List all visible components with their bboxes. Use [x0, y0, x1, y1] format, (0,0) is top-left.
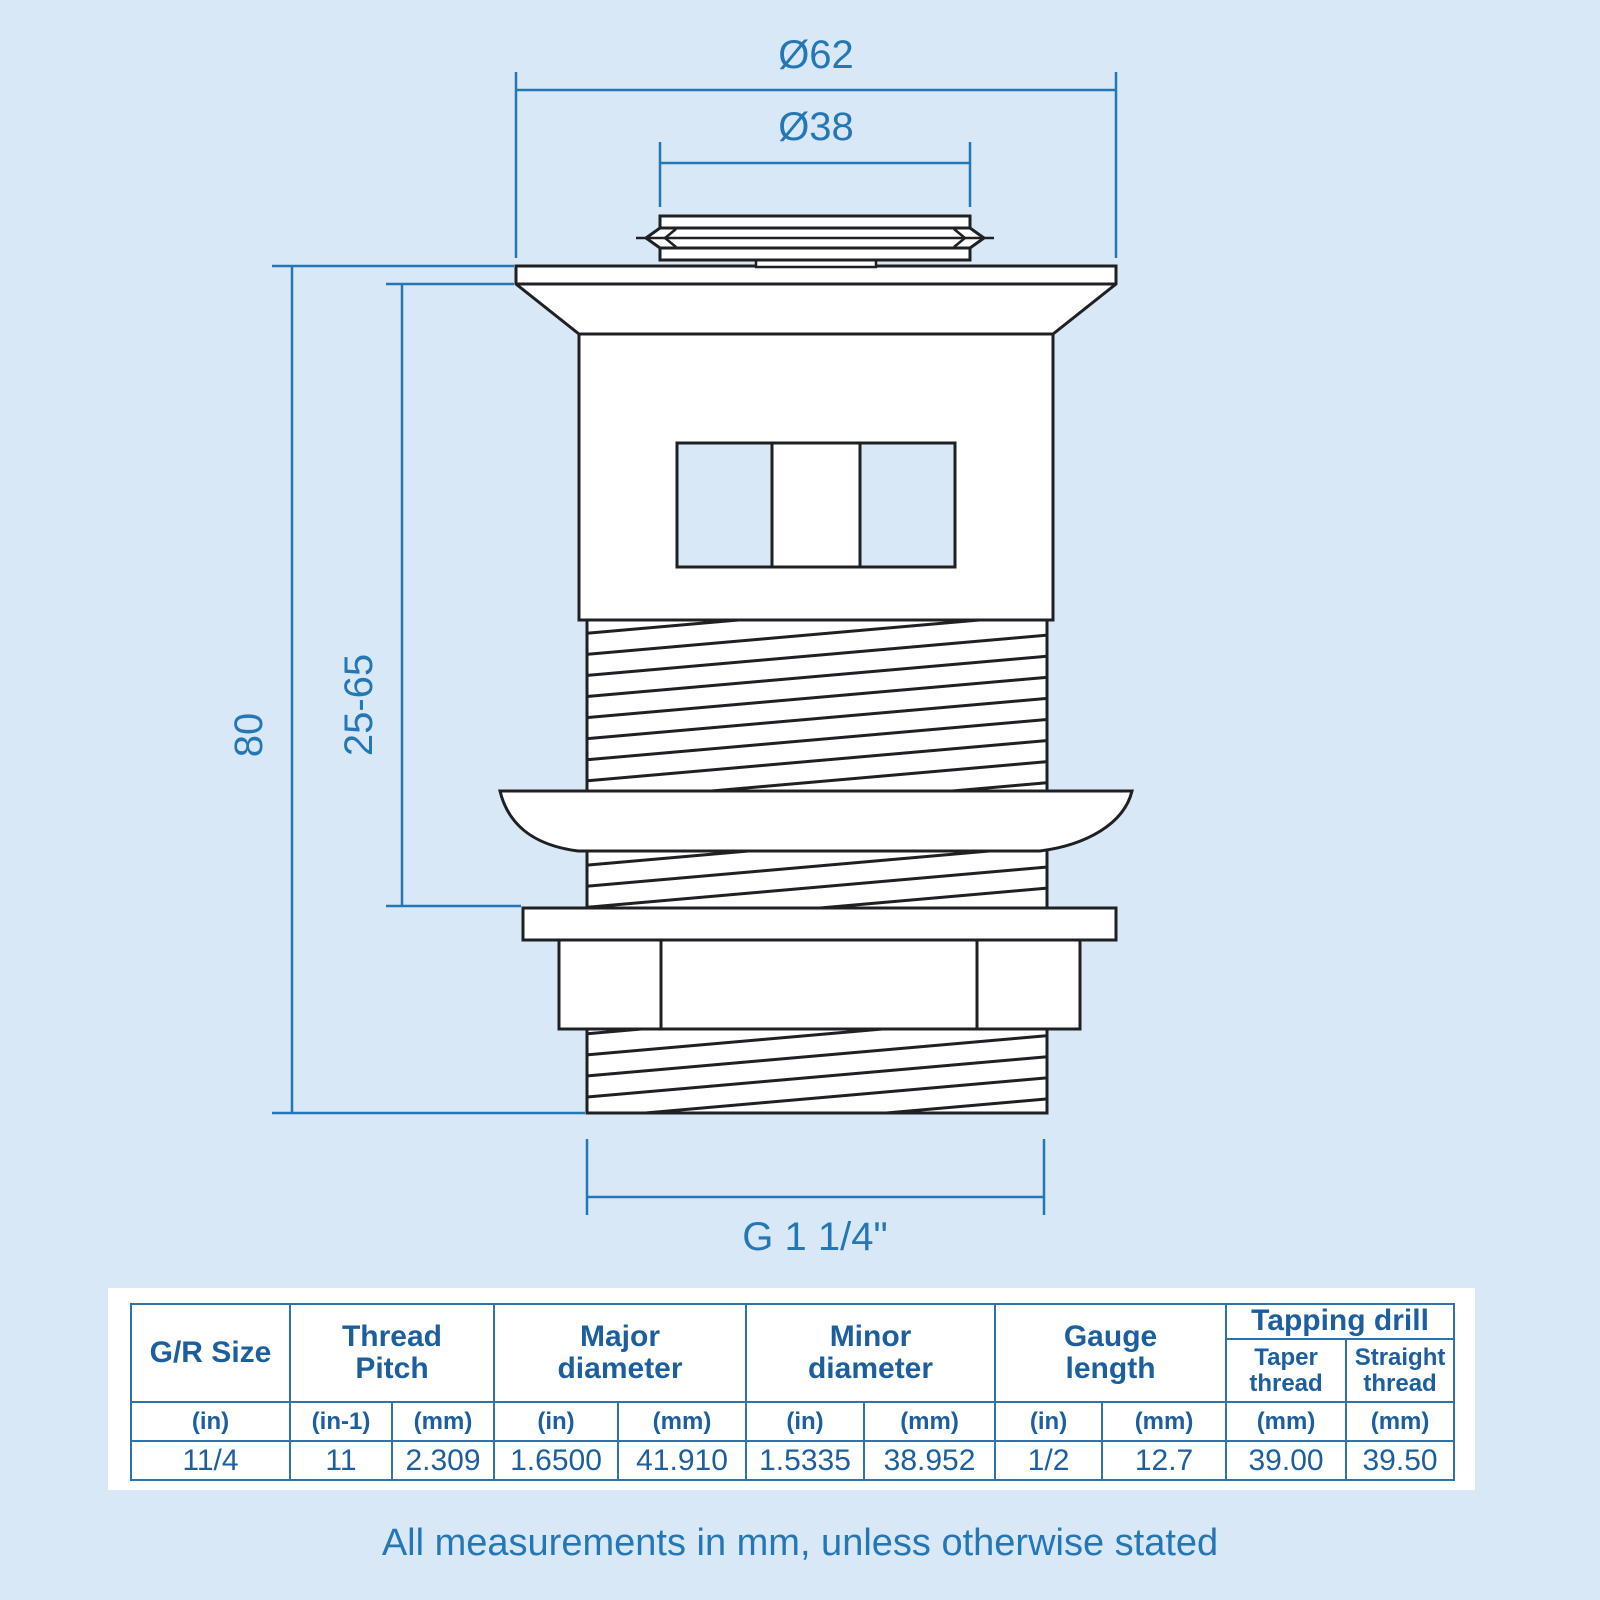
col-header-taper-thread: Taper thread [1226, 1339, 1346, 1402]
unit-cell: (in) [494, 1402, 618, 1441]
fixture-outline [500, 216, 1132, 1113]
col-header-gauge-length: Gauge length [995, 1304, 1226, 1402]
slot-window-right [860, 443, 955, 567]
top-flange [516, 266, 1116, 334]
measurement-note: All measurements in mm, unless otherwise… [0, 1522, 1600, 1565]
unit-cell: (in-1) [290, 1402, 392, 1441]
unit-cell: (in) [131, 1402, 290, 1441]
value-cell: 39.00 [1226, 1441, 1346, 1480]
dim-thread-size-label: G 1 1/4" [742, 1215, 887, 1259]
basin-waste-technical-drawing: Ø62 Ø38 80 25-65 G 1 1/4" [0, 0, 1600, 1290]
value-cell: 11 [290, 1441, 392, 1480]
value-cell: 1/2 [995, 1441, 1102, 1480]
value-cell: 1.6500 [494, 1441, 618, 1480]
value-cell: 1.5335 [746, 1441, 864, 1480]
unit-cell: (in) [995, 1402, 1102, 1441]
dim-total-height-label: 80 [227, 713, 271, 758]
slip-washer [500, 791, 1132, 851]
plug-lower-plate [660, 248, 970, 260]
unit-cell: (mm) [1102, 1402, 1226, 1441]
unit-cell: (mm) [618, 1402, 746, 1441]
value-cell: 11/4 [131, 1441, 290, 1480]
thread-band-upper [587, 620, 1047, 908]
dim-inner-diameter-label: Ø38 [778, 105, 854, 149]
col-header-tapping-drill: Tapping drill [1226, 1304, 1454, 1339]
value-cell: 12.7 [1102, 1441, 1226, 1480]
slot-window-left [677, 443, 772, 567]
value-cell: 2.309 [392, 1441, 494, 1480]
units-row: (in) (in-1) (mm) (in) (mm) (in) (mm) (in… [131, 1402, 1454, 1441]
col-header-minor-diameter: Minor diameter [746, 1304, 995, 1402]
col-header-gr-size: G/R Size [131, 1304, 290, 1402]
backnut-plate [523, 908, 1116, 940]
spec-sheet: Ø62 Ø38 80 25-65 G 1 1/4" G/R Size Threa… [0, 0, 1600, 1600]
slot-window-middle [772, 443, 860, 567]
dim-clamp-range-label: 25-65 [337, 654, 381, 756]
values-row: 11/4 11 2.309 1.6500 41.910 1.5335 38.95… [131, 1441, 1454, 1480]
dim-outer-diameter-label: Ø62 [778, 33, 854, 77]
unit-cell: (mm) [1346, 1402, 1454, 1441]
backnut-hex [559, 940, 1080, 1029]
col-header-thread-pitch: Thread Pitch [290, 1304, 494, 1402]
value-cell: 38.952 [864, 1441, 995, 1480]
spec-table-panel: G/R Size Thread Pitch Major diameter Min… [108, 1288, 1475, 1490]
value-cell: 39.50 [1346, 1441, 1454, 1480]
unit-cell: (mm) [864, 1402, 995, 1441]
col-header-major-diameter: Major diameter [494, 1304, 746, 1402]
thread-band-lower [587, 1029, 1047, 1113]
unit-cell: (mm) [392, 1402, 494, 1441]
plug-top-plate [660, 216, 970, 228]
value-cell: 41.910 [618, 1441, 746, 1480]
unit-cell: (mm) [1226, 1402, 1346, 1441]
thread-spec-table: G/R Size Thread Pitch Major diameter Min… [130, 1303, 1455, 1481]
col-header-straight-thread: Straight thread [1346, 1339, 1454, 1402]
unit-cell: (in) [746, 1402, 864, 1441]
